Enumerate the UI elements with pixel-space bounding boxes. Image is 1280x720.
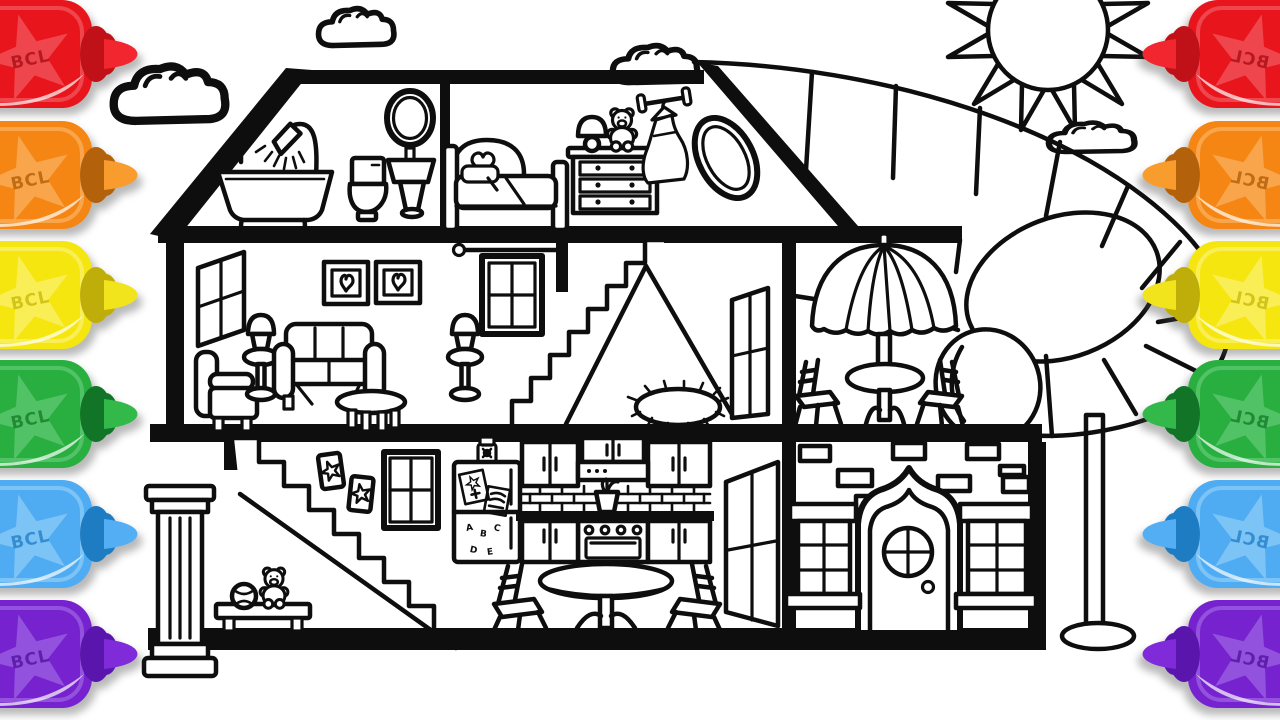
shower [256, 123, 316, 176]
kitchen: A B C D E [454, 437, 714, 562]
ball [232, 584, 256, 608]
arched-front-door [858, 468, 960, 630]
heart-picture [324, 262, 368, 304]
window [482, 256, 542, 334]
star-picture [318, 453, 345, 490]
teddy-bear [607, 109, 636, 151]
marker-yellow [0, 241, 138, 349]
door-knob [923, 582, 934, 593]
ground-slab [148, 628, 1046, 650]
stove [578, 521, 648, 562]
dining-chair [494, 564, 546, 630]
range-hood [578, 462, 648, 480]
column [144, 486, 216, 676]
open-door [732, 288, 768, 418]
marker-red-mirrored [1143, 0, 1280, 108]
left-wall [166, 242, 184, 426]
patio-chair [795, 360, 841, 426]
marker-blue-mirrored [1143, 480, 1280, 588]
stairwell [512, 240, 768, 430]
attic-bedroom [444, 87, 770, 230]
heart-picture [376, 262, 420, 303]
plant-pot [596, 479, 618, 512]
coffee-table [337, 391, 405, 431]
dining-chair [668, 564, 720, 630]
heart-bed [444, 140, 567, 230]
lamp-table [448, 315, 482, 400]
patio-left-wall [782, 242, 796, 426]
marker-orange [0, 121, 138, 229]
round-door-window [884, 528, 932, 576]
umbrella [812, 234, 956, 368]
teddy-bear [260, 568, 288, 608]
toilet [350, 158, 387, 220]
patio-table [847, 364, 923, 424]
side-window [198, 252, 244, 346]
patio [795, 234, 963, 426]
window [786, 504, 860, 608]
pedestal-sink [388, 141, 434, 217]
window [956, 504, 1036, 608]
marker-blue [0, 480, 138, 588]
fridge: A B C D E [454, 462, 520, 562]
coloring-page: BCL [0, 0, 1280, 720]
dining-table [540, 564, 672, 628]
toy-bench [216, 568, 310, 631]
roof-top [286, 70, 704, 84]
open-door [726, 462, 778, 626]
star-picture [348, 476, 373, 512]
cloud [319, 9, 394, 46]
living-room [196, 245, 558, 432]
fringed-rug [628, 381, 728, 430]
marker-green [0, 360, 138, 468]
coloring-page-canvas: BCL [0, 0, 1280, 720]
oval-mirror [387, 91, 433, 145]
marker-purple [0, 600, 138, 708]
window [384, 452, 438, 528]
cloud [114, 66, 226, 120]
facade [786, 443, 1036, 630]
dining-set [494, 564, 720, 630]
marker-green-mirrored [1143, 360, 1280, 468]
slide-support-pole [1062, 415, 1134, 649]
clothes-rod-with-dress [637, 87, 692, 183]
marker-yellow-mirrored [1143, 241, 1280, 349]
marker-purple-mirrored [1143, 600, 1280, 708]
